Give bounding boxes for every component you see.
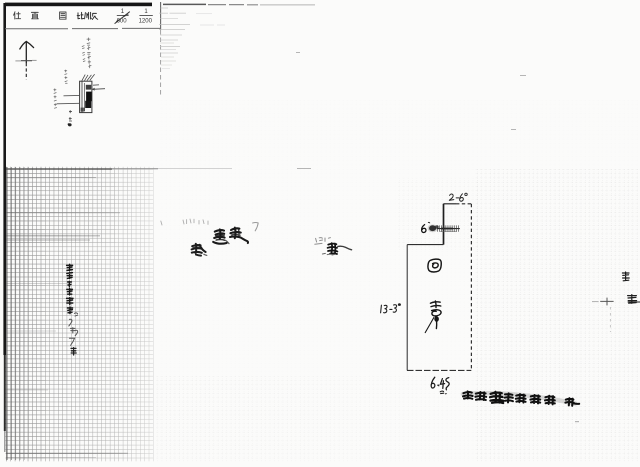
- svg-text:600: 600: [117, 19, 128, 25]
- svg-text:1200: 1200: [139, 19, 153, 25]
